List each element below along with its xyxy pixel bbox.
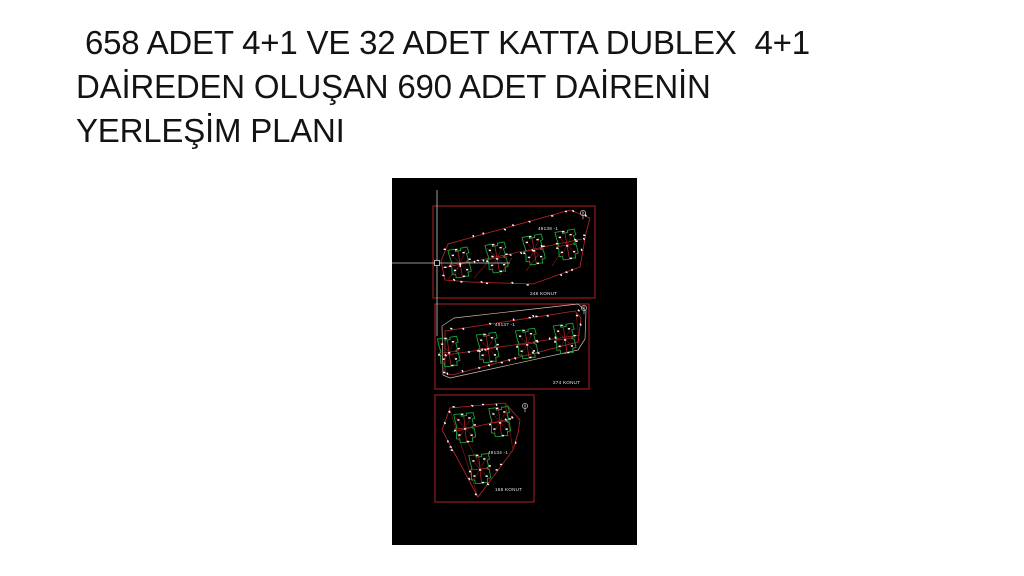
dimension-tick	[472, 460, 474, 462]
dimension-tick	[480, 281, 483, 283]
dimension-tick	[489, 424, 491, 426]
building-footprint	[452, 412, 477, 443]
parcel-id-label: 49137 -1	[495, 322, 515, 327]
dimension-tick	[474, 424, 476, 426]
building-footprint	[552, 323, 578, 355]
parcel-boundary	[445, 311, 581, 375]
site-block-49137: 49137 -1274 KONUT	[435, 304, 589, 389]
dimension-tick	[450, 328, 453, 330]
dimension-tick	[468, 258, 470, 260]
dimension-tick	[447, 440, 449, 442]
dimension-tick	[505, 253, 507, 255]
dimension-tick	[492, 413, 494, 415]
dimension-tick	[568, 328, 570, 330]
subdivision-line	[474, 262, 488, 278]
dimension-tick	[467, 441, 469, 443]
dimension-tick	[500, 464, 502, 465]
dimension-tick	[478, 350, 480, 352]
dimension-tick	[464, 428, 466, 430]
dimension-tick	[482, 404, 484, 406]
dimension-tick	[486, 475, 488, 477]
dimension-tick	[504, 229, 507, 231]
dimension-tick	[559, 237, 561, 239]
unit-count-label: 248 KONUT	[530, 291, 557, 296]
building-footprint	[487, 406, 512, 437]
block-border	[435, 395, 534, 502]
dimension-tick	[503, 411, 505, 413]
building-footprint	[467, 453, 492, 484]
site-outer-boundary	[442, 304, 586, 378]
building-footprint	[520, 234, 547, 267]
dimension-tick	[496, 408, 498, 410]
site-block-49134: 49134 -1168 KONUT	[435, 395, 534, 502]
dimension-tick	[442, 275, 444, 277]
title-line-2: DAİREDEN OLUŞAN 690 ADET DAİRENİN	[76, 65, 810, 109]
dimension-tick	[489, 465, 491, 467]
connector-line	[442, 239, 582, 268]
dimension-tick	[506, 428, 508, 430]
dimension-tick	[458, 348, 460, 350]
building-footprint	[483, 242, 510, 275]
north-arrow-icon	[522, 403, 527, 412]
dimension-tick	[469, 471, 471, 473]
dimension-tick	[528, 257, 530, 259]
dimension-tick	[483, 458, 485, 460]
dimension-tick	[583, 234, 585, 236]
dimension-tick	[499, 422, 501, 424]
dimension-tick	[444, 266, 446, 268]
dimension-tick	[461, 414, 463, 416]
dimension-tick	[509, 418, 511, 420]
dimension-tick	[452, 255, 454, 257]
dimension-tick	[577, 309, 580, 312]
dimension-tick	[496, 348, 497, 350]
dimension-tick	[489, 250, 491, 252]
dimension-tick	[491, 265, 493, 267]
dimension-tick	[520, 252, 523, 254]
dimension-tick	[479, 469, 481, 471]
dimension-tick	[457, 419, 459, 421]
dimension-tick	[473, 235, 475, 237]
dimension-tick	[449, 446, 451, 448]
dimension-tick	[569, 234, 571, 236]
dimension-tick	[447, 373, 449, 375]
dimension-tick	[541, 245, 543, 247]
dimension-tick	[527, 284, 529, 285]
dimension-tick	[536, 239, 538, 241]
dimension-tick	[486, 282, 488, 284]
dimension-tick	[481, 354, 483, 356]
dimension-tick	[493, 428, 495, 430]
dimension-tick	[458, 434, 460, 436]
dimension-tick	[471, 434, 473, 436]
dimension-tick	[468, 417, 470, 419]
dimension-tick	[551, 215, 553, 217]
parcel-id-label: 49134 -1	[488, 450, 508, 455]
connector-line	[440, 335, 580, 356]
block-border	[433, 206, 595, 298]
dimension-tick	[530, 333, 532, 335]
cad-drawing: 49138 -1248 KONUT49137 -1274 KONUT49134 …	[392, 178, 637, 545]
dimension-tick	[515, 442, 517, 444]
dimension-tick	[476, 455, 478, 457]
building-footprint	[436, 336, 462, 368]
dimension-tick	[491, 255, 493, 257]
title-line-1: 658 ADET 4+1 VE 32 ADET KATTA DUBLEX 4+1	[76, 21, 810, 65]
dimension-tick	[481, 349, 482, 351]
unit-count-label: 274 KONUT	[553, 380, 580, 385]
dimension-tick	[497, 344, 499, 346]
dimension-tick	[459, 265, 461, 267]
dimension-tick	[471, 405, 474, 407]
dimension-tick	[454, 430, 456, 432]
site-block-49138: 49138 -1248 KONUT	[433, 206, 595, 298]
crosshair-cursor	[392, 190, 510, 336]
slide-title: 658 ADET 4+1 VE 32 ADET KATTA DUBLEX 4+1…	[76, 21, 810, 153]
dimension-tick	[520, 350, 522, 352]
unit-count-label: 168 KONUT	[495, 487, 522, 492]
building-footprint	[553, 229, 580, 262]
dimension-tick	[514, 357, 516, 360]
dimension-tick	[581, 249, 583, 251]
dimension-tick	[526, 242, 528, 244]
dimension-tick	[489, 323, 492, 326]
dimension-tick	[462, 252, 464, 254]
title-line-3: YERLEŞİM PLANI	[76, 109, 810, 153]
dimension-tick	[452, 341, 454, 343]
dimension-tick	[477, 259, 480, 261]
dimension-tick	[574, 335, 576, 337]
dimension-tick	[499, 247, 501, 249]
subdivision-line	[448, 266, 460, 279]
dimension-tick	[482, 482, 484, 484]
slide: 658 ADET 4+1 VE 32 ADET KATTA DUBLEX 4+1…	[0, 0, 1024, 576]
dimension-tick	[491, 337, 493, 339]
dimension-tick	[571, 269, 573, 271]
dimension-tick	[495, 469, 497, 471]
dimension-tick	[473, 475, 475, 477]
connector-line	[452, 418, 514, 432]
pickbox	[435, 261, 440, 266]
dimension-tick	[502, 435, 504, 437]
subdivision-line	[552, 251, 562, 266]
dimension-tick	[565, 211, 567, 213]
dimension-tick	[444, 249, 446, 250]
parcel-id-label: 49138 -1	[538, 226, 558, 231]
cad-viewport[interactable]: 49138 -1248 KONUT49137 -1274 KONUT49134 …	[392, 178, 637, 545]
